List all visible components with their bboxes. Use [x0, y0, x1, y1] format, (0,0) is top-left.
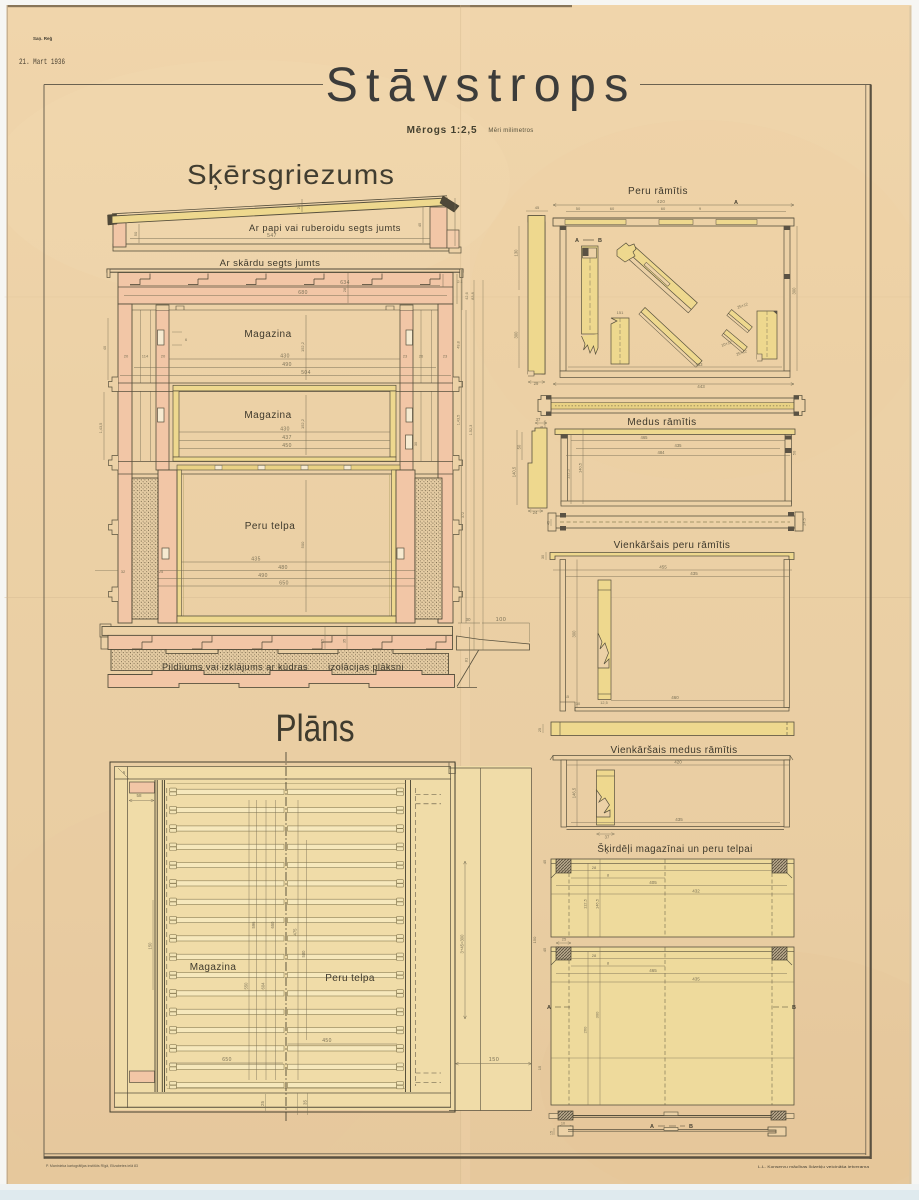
- svg-text:45: 45: [417, 222, 422, 227]
- svg-text:15: 15: [565, 695, 569, 699]
- svg-text:Mērogs 1:2,5: Mērogs 1:2,5: [407, 125, 478, 136]
- svg-text:443: 443: [697, 384, 705, 389]
- svg-text:112,5: 112,5: [583, 898, 588, 908]
- svg-text:650: 650: [222, 1057, 232, 1063]
- svg-text:450: 450: [322, 1038, 332, 1044]
- svg-text:30: 30: [414, 442, 418, 446]
- svg-text:25: 25: [159, 569, 164, 574]
- svg-text:260: 260: [583, 1026, 588, 1033]
- svg-text:300: 300: [514, 331, 519, 339]
- svg-text:B: B: [598, 238, 602, 244]
- svg-text:680: 680: [298, 290, 308, 296]
- svg-text:450: 450: [282, 443, 292, 449]
- svg-text:Vienkāršais peru rāmītis: Vienkāršais peru rāmītis: [614, 540, 731, 551]
- svg-text:23: 23: [403, 354, 408, 359]
- svg-text:37: 37: [536, 417, 541, 422]
- svg-text:435: 435: [675, 443, 683, 448]
- svg-text:A: A: [547, 1005, 551, 1011]
- svg-text:Ar skārdu segts jumts: Ar skārdu segts jumts: [220, 258, 321, 269]
- svg-text:25: 25: [538, 728, 542, 732]
- svg-text:430: 430: [280, 354, 290, 360]
- svg-text:Peru rāmītis: Peru rāmītis: [628, 186, 688, 197]
- svg-text:2.1: 2.1: [457, 280, 462, 284]
- svg-text:32: 32: [121, 569, 126, 574]
- svg-text:Magazina: Magazina: [244, 329, 291, 340]
- svg-text:437: 437: [282, 435, 292, 441]
- svg-text:460: 460: [671, 695, 679, 700]
- svg-text:480: 480: [278, 565, 288, 571]
- svg-text:B: B: [689, 1124, 693, 1130]
- svg-text:465: 465: [641, 435, 649, 440]
- svg-text:405: 405: [649, 880, 657, 885]
- svg-text:20: 20: [124, 354, 129, 359]
- svg-text:49,8: 49,8: [457, 341, 461, 348]
- svg-text:114: 114: [142, 354, 149, 359]
- svg-text:435: 435: [692, 977, 700, 982]
- svg-text:3+45=300: 3+45=300: [460, 934, 465, 954]
- svg-text:50: 50: [133, 231, 138, 236]
- svg-text:150: 150: [148, 942, 153, 950]
- svg-text:300: 300: [595, 1011, 600, 1018]
- svg-text:Peru telpa: Peru telpa: [245, 521, 296, 532]
- svg-text:372: 372: [461, 512, 465, 518]
- svg-text:433: 433: [696, 362, 704, 367]
- svg-text:435: 435: [251, 557, 261, 563]
- svg-text:L.L. Konservu mācības līdzekļu: L.L. Konservu mācības līdzekļu veicināša…: [758, 1164, 870, 1169]
- svg-text:15: 15: [537, 1065, 542, 1070]
- svg-text:60: 60: [610, 206, 615, 211]
- svg-text:1.52,3: 1.52,3: [469, 425, 473, 436]
- svg-text:20: 20: [161, 354, 166, 359]
- svg-text:23: 23: [443, 354, 448, 359]
- svg-text:P. Mantnieka kartogrāfijas ins: P. Mantnieka kartogrāfijas institūts Rīg…: [46, 1164, 138, 1168]
- svg-text:30: 30: [465, 617, 471, 622]
- svg-text:24: 24: [533, 510, 538, 515]
- svg-text:42,6: 42,6: [465, 292, 469, 299]
- svg-text:A: A: [734, 200, 738, 206]
- svg-text:24,5: 24,5: [803, 518, 807, 525]
- svg-text:140,5: 140,5: [512, 466, 517, 477]
- svg-text:435: 435: [675, 817, 683, 822]
- svg-text:146,5: 146,5: [595, 898, 600, 909]
- svg-text:25: 25: [562, 937, 567, 942]
- svg-text:40: 40: [103, 346, 107, 350]
- svg-text:550: 550: [243, 982, 248, 990]
- svg-text:Ar papi vai ruberoidu segts ju: Ar papi vai ruberoidu segts jumts: [249, 223, 401, 233]
- svg-text:Magazina: Magazina: [190, 962, 237, 973]
- svg-text:83,8: 83,8: [471, 292, 475, 299]
- svg-text:26: 26: [419, 354, 424, 359]
- svg-text:475: 475: [293, 928, 298, 936]
- svg-text:45: 45: [547, 521, 551, 525]
- svg-text:490: 490: [258, 573, 268, 579]
- svg-text:28: 28: [342, 287, 347, 292]
- svg-text:604: 604: [260, 982, 265, 990]
- svg-text:81: 81: [464, 657, 469, 662]
- svg-text:650: 650: [270, 921, 275, 929]
- svg-text:45: 45: [535, 205, 540, 210]
- svg-text:300: 300: [572, 630, 577, 638]
- svg-text:150: 150: [532, 936, 537, 943]
- svg-text:122,5: 122,5: [566, 468, 571, 479]
- svg-text:12,5: 12,5: [600, 701, 607, 705]
- svg-text:Saņ. Reģ: Saņ. Reģ: [33, 35, 53, 41]
- svg-text:Šķirdēļi magazīnai un peru tel: Šķirdēļi magazīnai un peru telpai: [597, 844, 752, 855]
- svg-text:465: 465: [649, 968, 657, 973]
- svg-text:50: 50: [576, 206, 581, 211]
- svg-text:420: 420: [674, 760, 682, 765]
- svg-text:484: 484: [658, 450, 666, 455]
- svg-text:Sķērsgriezums: Sķērsgriezums: [187, 159, 395, 190]
- svg-text:Peru telpa: Peru telpa: [325, 973, 375, 984]
- svg-text:28: 28: [592, 953, 597, 958]
- svg-text:300: 300: [792, 287, 797, 295]
- svg-text:100: 100: [496, 617, 507, 623]
- svg-text:45: 45: [542, 859, 547, 864]
- svg-text:25: 25: [321, 639, 325, 643]
- svg-text:Vienkāršais medus rāmītis: Vienkāršais medus rāmītis: [610, 745, 737, 756]
- svg-text:10: 10: [561, 1122, 565, 1126]
- svg-text:58: 58: [136, 793, 142, 798]
- svg-text:Stāvstrops: Stāvstrops: [325, 58, 636, 112]
- svg-text:Mēri milimetros: Mēri milimetros: [488, 128, 533, 134]
- svg-text:151: 151: [617, 310, 624, 315]
- svg-text:490: 490: [282, 362, 292, 368]
- svg-text:6: 6: [185, 338, 187, 342]
- svg-text:140,5: 140,5: [578, 462, 583, 473]
- svg-text:146,5: 146,5: [572, 787, 577, 798]
- svg-text:50: 50: [517, 444, 522, 449]
- svg-text:A: A: [650, 1124, 654, 1130]
- svg-text:152,2: 152,2: [300, 418, 305, 429]
- svg-text:25: 25: [260, 1101, 265, 1106]
- svg-text:28: 28: [592, 865, 597, 870]
- svg-text:21. Mart 1936: 21. Mart 1936: [19, 59, 65, 67]
- svg-text:29: 29: [534, 381, 539, 386]
- svg-text:Plāns: Plāns: [276, 708, 355, 750]
- svg-text:430: 430: [280, 427, 290, 433]
- svg-text:Magazina: Magazina: [244, 410, 291, 421]
- svg-text:1,43,5: 1,43,5: [457, 415, 461, 426]
- svg-text:130: 130: [514, 249, 519, 257]
- svg-text:547: 547: [267, 233, 277, 239]
- svg-text:580: 580: [301, 950, 306, 958]
- svg-text:650: 650: [279, 581, 289, 587]
- svg-text:30: 30: [541, 555, 545, 559]
- svg-text:A: A: [575, 238, 579, 244]
- svg-text:45: 45: [542, 947, 547, 952]
- svg-text:435: 435: [690, 571, 698, 576]
- svg-text:35: 35: [343, 639, 347, 643]
- svg-text:455: 455: [659, 565, 667, 570]
- svg-text:420: 420: [657, 199, 666, 204]
- svg-text:150: 150: [489, 1057, 499, 1063]
- svg-text:B: B: [792, 1005, 796, 1011]
- svg-text:50: 50: [792, 450, 797, 455]
- svg-text:15: 15: [550, 1131, 554, 1135]
- svg-text:35: 35: [303, 1100, 308, 1105]
- svg-text:60: 60: [661, 206, 666, 211]
- svg-text:37: 37: [605, 835, 610, 840]
- svg-text:25: 25: [296, 204, 301, 209]
- svg-text:152,2: 152,2: [300, 341, 305, 352]
- svg-text:432: 432: [692, 889, 700, 894]
- svg-text:596: 596: [251, 921, 256, 929]
- svg-text:30: 30: [576, 702, 580, 706]
- svg-text:Medus rāmītis: Medus rāmītis: [627, 417, 696, 428]
- svg-text:500: 500: [300, 541, 305, 548]
- svg-text:1,43,5: 1,43,5: [99, 423, 103, 434]
- svg-text:634: 634: [340, 280, 350, 286]
